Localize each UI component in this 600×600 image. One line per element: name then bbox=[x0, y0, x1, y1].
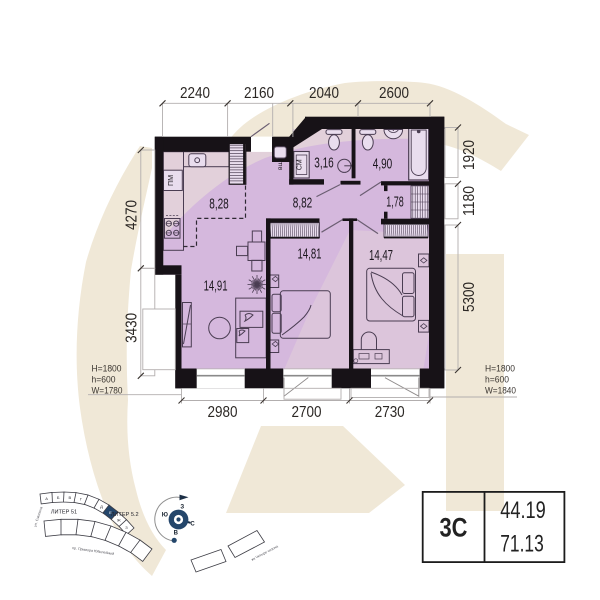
svg-text:Б: Б bbox=[57, 495, 60, 500]
svg-text:71.13: 71.13 bbox=[500, 531, 544, 558]
svg-text:З: З bbox=[180, 504, 184, 510]
svg-text:Ж: Ж bbox=[117, 517, 121, 522]
svg-text:1920: 1920 bbox=[461, 140, 478, 170]
svg-text:ЛИТЕР 5.2: ЛИТЕР 5.2 bbox=[111, 512, 139, 518]
svg-text:8,28: 8,28 bbox=[209, 197, 229, 213]
svg-text:Ю: Ю bbox=[162, 513, 168, 519]
svg-text:h=600: h=600 bbox=[485, 375, 509, 386]
svg-text:3,16: 3,16 bbox=[314, 156, 334, 172]
svg-text:44.19: 44.19 bbox=[500, 497, 546, 524]
svg-text:2700: 2700 bbox=[292, 404, 322, 421]
svg-text:СМ: СМ bbox=[294, 159, 303, 170]
svg-text:H=1800: H=1800 bbox=[485, 364, 515, 375]
svg-text:ПМ: ПМ bbox=[166, 175, 175, 186]
svg-text:14,81: 14,81 bbox=[298, 246, 322, 262]
svg-text:1,78: 1,78 bbox=[386, 194, 404, 210]
svg-text:W=1840: W=1840 bbox=[485, 386, 516, 397]
svg-text:Д: Д bbox=[100, 504, 103, 509]
svg-text:2040: 2040 bbox=[309, 85, 339, 102]
svg-text:2160: 2160 bbox=[244, 85, 274, 102]
svg-text:2240: 2240 bbox=[180, 85, 210, 102]
svg-text:h=600: h=600 bbox=[92, 375, 116, 386]
svg-text:W=1780: W=1780 bbox=[92, 386, 123, 397]
svg-text:В: В bbox=[68, 495, 71, 500]
svg-text:2980: 2980 bbox=[208, 404, 238, 421]
svg-text:H=1800: H=1800 bbox=[92, 364, 122, 375]
svg-text:В: В bbox=[174, 531, 179, 537]
svg-text:5300: 5300 bbox=[461, 282, 478, 312]
svg-text:вш: вш bbox=[277, 161, 284, 170]
svg-text:14,47: 14,47 bbox=[369, 248, 393, 264]
svg-text:2600: 2600 bbox=[379, 85, 409, 102]
svg-text:А: А bbox=[45, 496, 48, 501]
svg-text:4,90: 4,90 bbox=[373, 156, 393, 172]
svg-text:14,91: 14,91 bbox=[204, 279, 228, 295]
svg-text:ЛИТЕР 51: ЛИТЕР 51 bbox=[51, 510, 77, 516]
svg-text:3С: 3С bbox=[440, 513, 468, 543]
svg-text:3430: 3430 bbox=[124, 313, 141, 343]
svg-text:2730: 2730 bbox=[375, 404, 405, 421]
svg-text:8,82: 8,82 bbox=[293, 196, 313, 212]
svg-text:С: С bbox=[190, 522, 195, 528]
svg-text:4270: 4270 bbox=[124, 200, 141, 230]
svg-text:1180: 1180 bbox=[461, 186, 478, 216]
